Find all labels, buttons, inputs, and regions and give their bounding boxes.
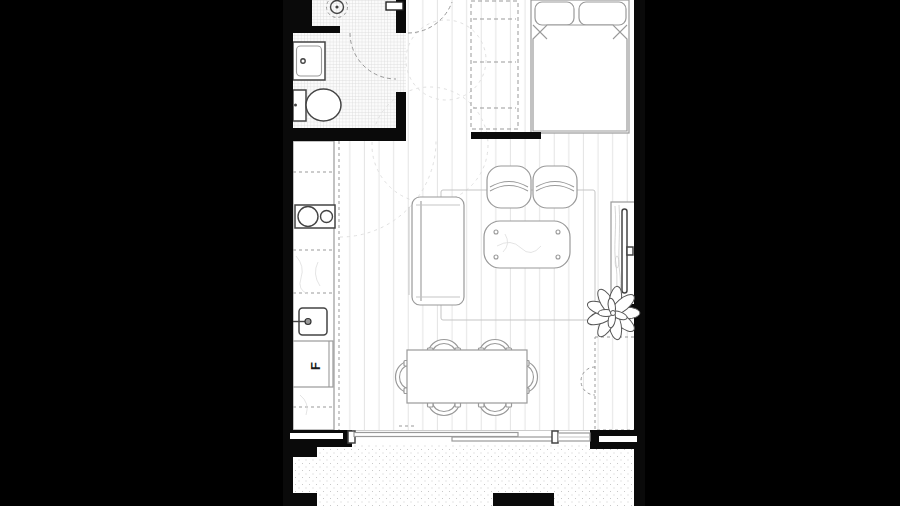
kitchen: F [293, 141, 339, 430]
toilet [293, 89, 341, 121]
bed [531, 0, 629, 133]
bathroom-wall [396, 92, 406, 132]
wardrobe-nib-wall [471, 132, 541, 139]
duvet [533, 25, 627, 131]
floor-plan-svg: F [0, 0, 900, 506]
fridge-label: F [308, 362, 323, 370]
glass-panel [452, 437, 553, 441]
balcony-pier [493, 493, 554, 506]
balcony-pier [293, 447, 317, 457]
coffee-table [484, 221, 570, 268]
tv-bracket [627, 247, 633, 255]
balcony-paving [293, 444, 634, 506]
armchair [487, 166, 531, 208]
pillow [579, 2, 626, 25]
service-shaft [283, 0, 312, 30]
window-slot [599, 436, 637, 442]
armchair [533, 166, 577, 208]
sofa [409, 197, 464, 305]
shower-screen-wall [293, 26, 340, 33]
cooktop [295, 205, 335, 228]
bathroom-wall [283, 128, 406, 141]
entry-door [386, 2, 403, 10]
pillow [535, 2, 574, 25]
glass-panel [354, 433, 518, 437]
vanity-basin [293, 42, 325, 80]
dining-table [407, 350, 527, 403]
balcony-pier [293, 493, 317, 506]
door-frame [552, 431, 558, 443]
right-wall [634, 0, 645, 506]
fridge: F [293, 341, 333, 387]
floor-plan-image: F [0, 0, 900, 506]
window-slot [290, 433, 343, 439]
